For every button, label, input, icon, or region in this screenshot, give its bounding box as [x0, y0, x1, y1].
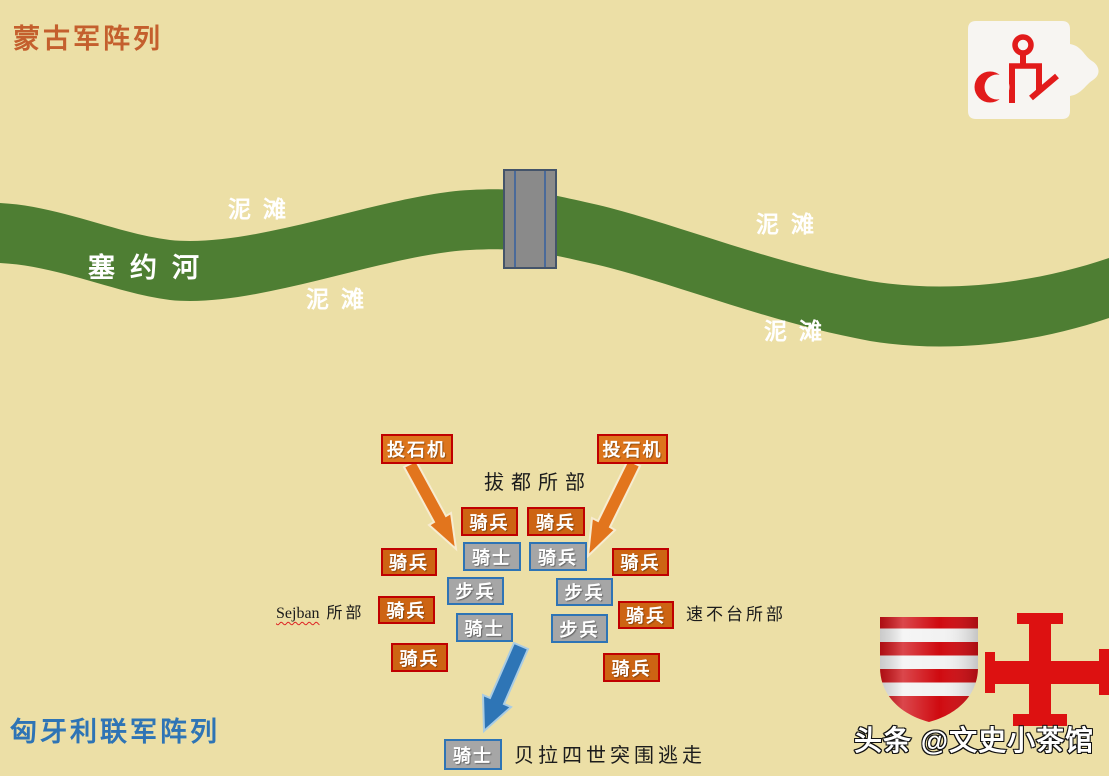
- catapult-arrow-left-icon: [404, 461, 456, 549]
- bridge-icon: [504, 170, 556, 268]
- unit-infantry-left: 步兵: [447, 577, 504, 605]
- unit-catapult-left: 投石机: [381, 434, 453, 464]
- unit-cavalry-mid-right: 骑兵: [618, 601, 674, 629]
- mongol-army-title: 蒙古军阵列: [13, 17, 163, 56]
- catapult-arrow-right-icon: [588, 460, 640, 556]
- subutai-forces-label: 速不台所部: [686, 600, 786, 625]
- unit-cavalry-far-left: 骑兵: [381, 548, 437, 576]
- unit-cavalry-gray: 骑兵: [529, 542, 587, 571]
- watermark: 头条 @文史小茶馆: [854, 719, 1094, 759]
- unit-knight-escape: 骑士: [444, 739, 502, 770]
- batu-forces-label: 拔都所部: [484, 466, 592, 495]
- red-cross-icon: [985, 613, 1109, 726]
- mudflat-label-bottom-left: 泥滩: [306, 280, 376, 314]
- unit-catapult-right: 投石机: [597, 434, 668, 464]
- unit-infantry-lower: 步兵: [551, 614, 608, 643]
- mudflat-label-top-left: 泥滩: [228, 190, 298, 224]
- unit-cavalry-low-left: 骑兵: [391, 643, 448, 672]
- sejban-forces-label: Sejban 所部: [276, 599, 365, 623]
- tamga-seal-logo: [968, 21, 1099, 119]
- unit-cavalry-top-right: 骑兵: [527, 507, 585, 536]
- sejban-suffix: 所部: [327, 605, 365, 622]
- mudflat-label-top-right: 泥滩: [756, 205, 826, 239]
- unit-cavalry-far-right: 骑兵: [612, 548, 669, 576]
- river-name-label: 塞约河: [88, 246, 214, 285]
- sejban-name: Sejban: [276, 605, 320, 622]
- mudflat-label-bottom-right: 泥滩: [764, 312, 834, 346]
- unit-infantry-right: 步兵: [556, 578, 613, 606]
- unit-cavalry-low-right: 骑兵: [603, 653, 660, 682]
- unit-cavalry-top-left: 骑兵: [461, 507, 518, 536]
- arpad-stripes-shield-icon: [877, 615, 981, 723]
- unit-knight-lower: 骑士: [456, 613, 513, 642]
- diagram-graphics: [0, 0, 1109, 776]
- battle-diagram: 蒙古军阵列 匈牙利联军阵列 塞约河 泥滩 泥滩 泥滩 泥滩 投石机 投石机 骑兵…: [0, 0, 1109, 776]
- escape-arrow-icon: [483, 643, 528, 731]
- bela-escape-label: 贝拉四世突围逃走: [514, 739, 706, 768]
- unit-knight-center: 骑士: [463, 542, 521, 571]
- unit-cavalry-mid-left: 骑兵: [378, 596, 435, 624]
- hungarian-army-title: 匈牙利联军阵列: [10, 710, 220, 749]
